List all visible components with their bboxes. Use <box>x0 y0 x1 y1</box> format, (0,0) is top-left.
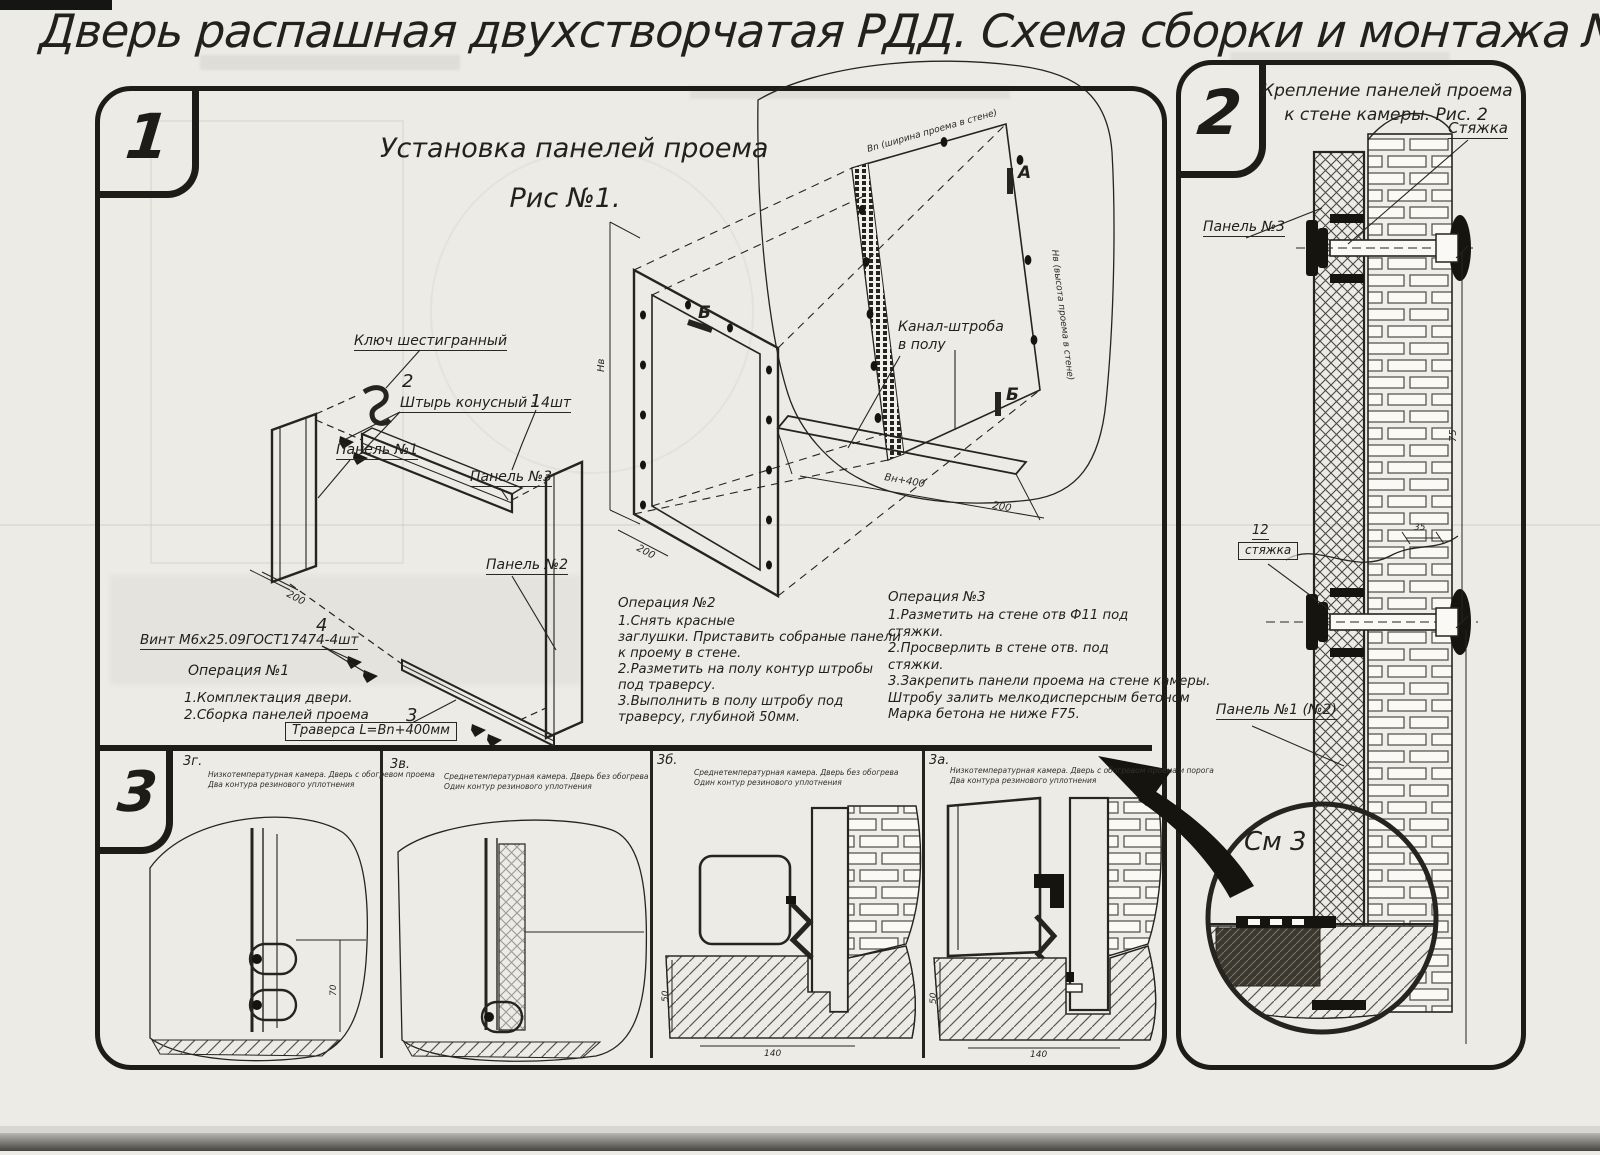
op2-title: Операция №2 <box>618 596 716 611</box>
op3-line: стяжки. <box>888 625 1210 642</box>
caption-line: Среднетемпературная камера. Дверь без об… <box>444 772 649 782</box>
label-channel-line2: в полу <box>898 338 946 353</box>
dim-140-3b: 140 <box>764 1049 781 1059</box>
op3-line: 2.Просверлить в стене отв. под <box>888 641 1210 658</box>
label-screw: Винт М6х25.09ГОСТ17474-4шт <box>140 633 358 650</box>
section3-item-caption: Низкотемпературная камера. Дверь с обогр… <box>950 766 1214 785</box>
label-traverse: Траверса L=Bn+400мм <box>285 722 457 741</box>
op1-line: 1.Комплектация двери. <box>184 690 369 707</box>
dim-35: 35 <box>1414 523 1426 533</box>
label-channel-line1: Канал-штроба <box>898 320 1004 335</box>
dim-140-3a: 140 <box>1030 1050 1047 1060</box>
dim-75: 75 <box>1448 429 1459 442</box>
section3-item-label: 3б. <box>657 754 677 768</box>
op2-line: 2.Разметить на полу контур штробы <box>618 662 901 678</box>
op3-line: 1.Разметить на стене отв Ф11 под <box>888 608 1210 625</box>
label-see-3: См 3 <box>1244 828 1307 857</box>
label-hex-key: Ключ шестигранный <box>354 334 507 351</box>
dim-200-panel1: 200 <box>285 589 307 608</box>
caption-line: Низкотемпературная камера. Дверь с обогр… <box>950 766 1214 776</box>
op2-line: 3.Выполнить в полу штробу под <box>618 694 901 710</box>
label-tie-number: 12 <box>1252 524 1269 540</box>
section3-item-caption: Низкотемпературная камера. Дверь с обогр… <box>208 770 435 789</box>
dim-200-frame: 200 <box>635 543 657 562</box>
callout-2: 2 <box>402 372 413 392</box>
section3-item-caption: Среднетемпературная камера. Дверь без об… <box>444 772 649 791</box>
dim-bn400: Вн+400 <box>883 472 925 490</box>
op2-line: под траверсу. <box>618 678 901 694</box>
dim-200-channel: 200 <box>991 500 1012 514</box>
op2-line: 1.Снять красные <box>618 614 901 630</box>
dim-opening-height: Нв (высота проема в стене) <box>1049 249 1075 381</box>
section-mark-b: Б <box>1006 386 1019 405</box>
dim-nv: Нв <box>596 358 607 372</box>
label-panel3: Панель №3 <box>470 470 552 487</box>
fig1-title-line1: Установка панелей проема <box>380 134 750 164</box>
op3-title: Операция №3 <box>888 590 986 605</box>
callout-1: 1 <box>530 392 541 412</box>
caption-line: Среднетемпературная камера. Дверь без об… <box>694 768 899 778</box>
op3-line: 3.Закрепить панели проема на стене камер… <box>888 674 1210 691</box>
label-panel2: Панель №2 <box>486 558 568 575</box>
op3-line: Марка бетона не ниже F75. <box>888 707 1210 724</box>
label-tie: Стяжка <box>1448 120 1508 139</box>
section3-item-caption: Среднетемпературная камера. Дверь без об… <box>694 768 899 787</box>
fig2-title-line1: Крепление панелей проема <box>1262 82 1510 101</box>
label-fig2-panel3: Панель №3 <box>1203 220 1285 237</box>
op3-line: Штробу залить мелкодисперсным бетоном <box>888 691 1210 708</box>
dim-50-3a: 50 <box>929 992 939 1004</box>
op1-title: Операция №1 <box>188 664 289 679</box>
section3-item-label: 3г. <box>183 755 202 769</box>
label-panel1-2: Панель №1 (№2) <box>1216 703 1337 720</box>
caption-line: Два контура резинового уплотнения <box>950 776 1214 786</box>
line-art: 200 200 200 Вн+400 Нв Вn (ширина проема … <box>0 0 1600 1151</box>
label-pin: Штырь конусный - 4шт <box>400 396 571 413</box>
op2-line: к проему в стене. <box>618 646 901 662</box>
fig1-title-line2: Рис №1. <box>380 184 750 214</box>
op2-line: заглушки. Приставить собраные панели <box>618 630 901 646</box>
op2-line: траверсу, глубиной 50мм. <box>618 710 901 726</box>
label-tie-boxed: стяжка <box>1238 542 1298 560</box>
hex-key-icon <box>364 388 390 424</box>
dim-70: 70 <box>329 984 339 996</box>
scanned-sheet: { "page": { "title": "Дверь распашная дв… <box>0 0 1600 1151</box>
section3-item-label: 3а. <box>929 754 949 768</box>
op2-lines: 1.Снять красные заглушки. Приставить соб… <box>618 614 901 726</box>
section-mark-b2: Б <box>698 304 711 323</box>
section3-item-label: 3в. <box>390 758 410 772</box>
section-mark-a: А <box>1018 164 1031 183</box>
caption-line: Два контура резинового уплотнения <box>208 780 435 790</box>
label-panel1: Панель №1 <box>336 443 418 460</box>
op1-lines: 1.Комплектация двери. 2.Сборка панелей п… <box>184 690 369 724</box>
caption-line: Один контур резинового уплотнения <box>694 778 899 788</box>
dim-50-3b: 50 <box>661 990 671 1002</box>
caption-line: Один контур резинового уплотнения <box>444 782 649 792</box>
op3-lines: 1.Разметить на стене отв Ф11 под стяжки.… <box>888 608 1210 724</box>
op3-line: стяжки. <box>888 658 1210 675</box>
